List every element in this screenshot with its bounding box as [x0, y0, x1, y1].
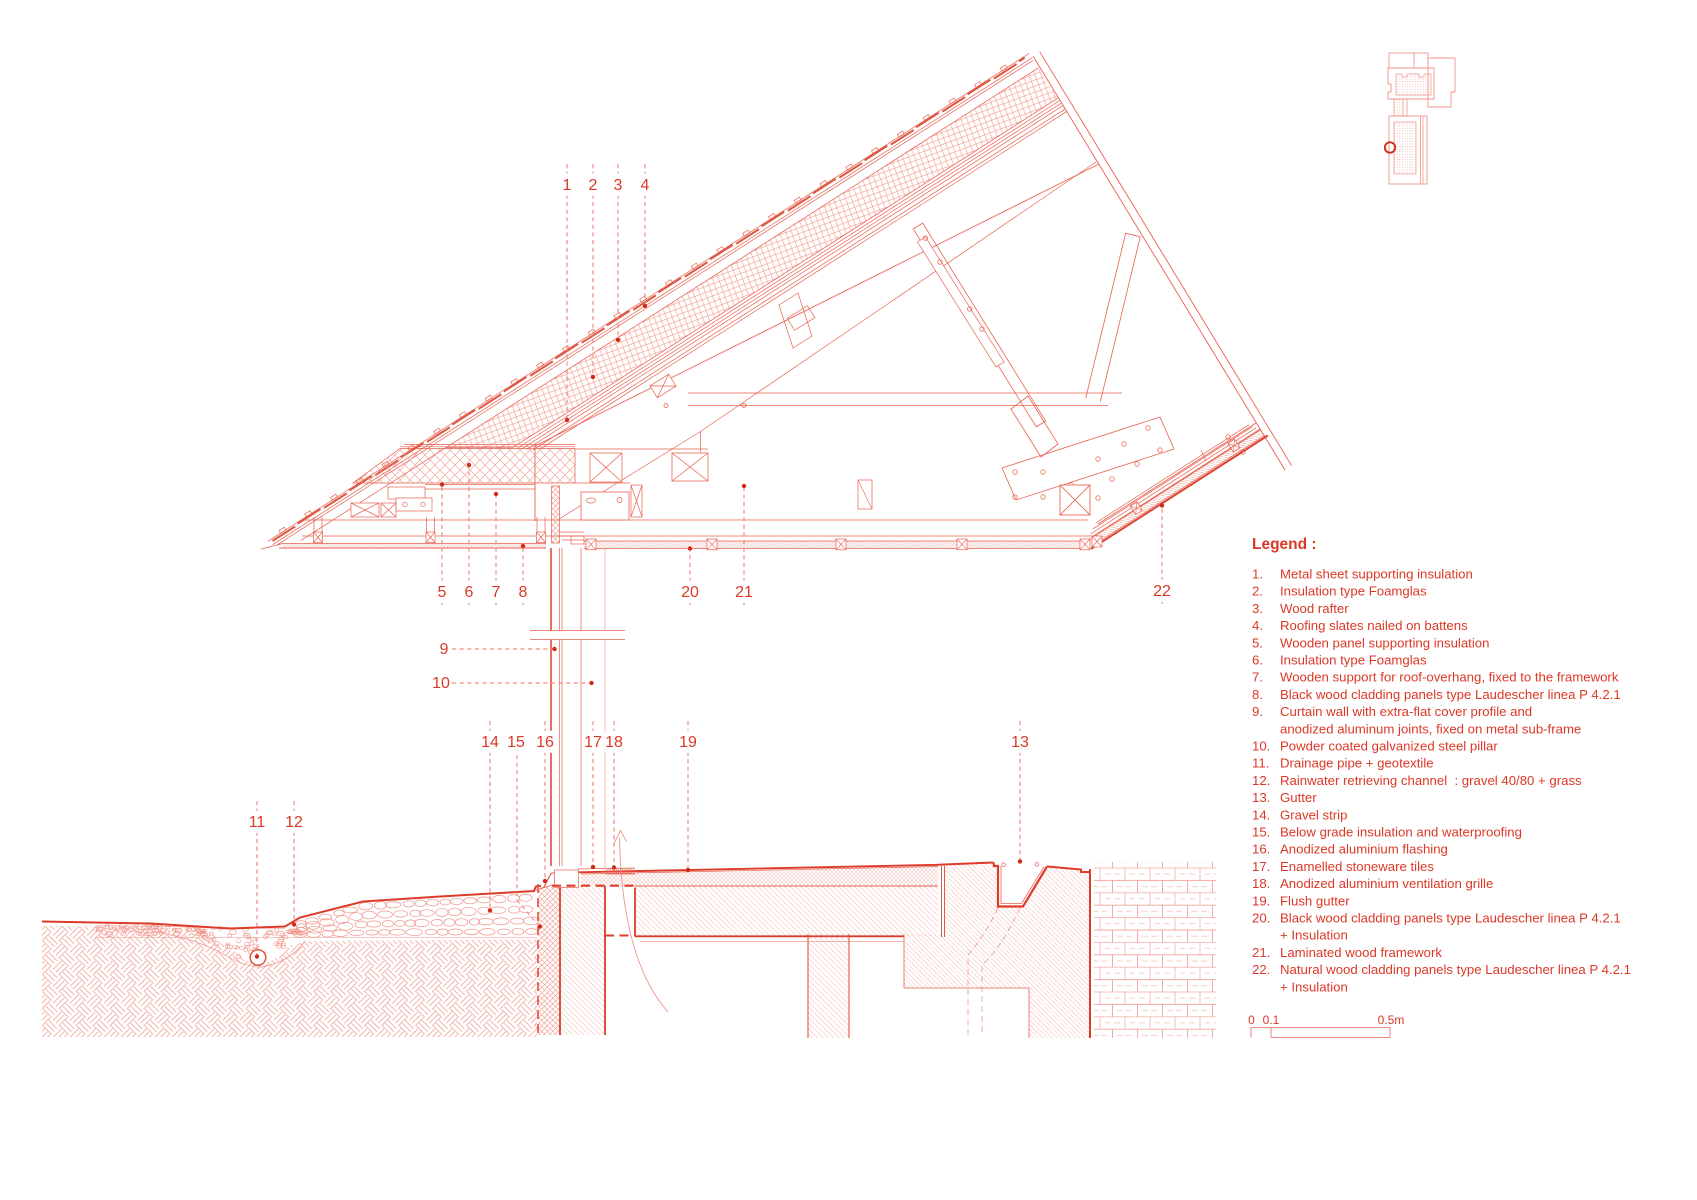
svg-text:17: 17 [584, 734, 602, 751]
svg-text:2.: 2. [1252, 584, 1263, 599]
svg-text:Below grade insulation and wat: Below grade insulation and waterproofing [1280, 825, 1522, 840]
svg-text:3: 3 [614, 177, 623, 194]
svg-text:anodized aluminum joints, fixe: anodized aluminum joints, fixed on metal… [1280, 721, 1581, 736]
svg-text:Curtain wall with extra-flat c: Curtain wall with extra-flat cover profi… [1280, 704, 1532, 719]
svg-text:9: 9 [440, 641, 449, 658]
svg-text:Wood rafter: Wood rafter [1280, 601, 1349, 616]
svg-text:21: 21 [735, 584, 753, 601]
svg-text:19: 19 [679, 734, 697, 751]
svg-text:22: 22 [1153, 583, 1171, 600]
svg-text:16: 16 [536, 734, 554, 751]
svg-text:Roofing slates nailed on batte: Roofing slates nailed on battens [1280, 618, 1468, 633]
svg-text:Drainage pipe + geotextile: Drainage pipe + geotextile [1280, 756, 1434, 771]
svg-text:Gutter: Gutter [1280, 790, 1317, 805]
svg-text:14.: 14. [1252, 807, 1270, 822]
svg-text:5: 5 [438, 584, 447, 601]
svg-text:18.: 18. [1252, 876, 1270, 891]
svg-text:18: 18 [605, 734, 623, 751]
svg-text:4: 4 [641, 177, 650, 194]
svg-text:Anodized aluminium ventilation: Anodized aluminium ventilation grille [1280, 876, 1493, 891]
svg-text:Black wood cladding panels typ: Black wood cladding panels type Laudesch… [1280, 687, 1621, 702]
svg-text:10.: 10. [1252, 739, 1270, 754]
svg-text:Enamelled stoneware tiles: Enamelled stoneware tiles [1280, 859, 1434, 874]
svg-text:8.: 8. [1252, 687, 1263, 702]
svg-text:Rainwater retrieving channel: Rainwater retrieving channel : gravel 40… [1280, 773, 1582, 788]
svg-text:Wooden panel supporting insula: Wooden panel supporting insulation [1280, 635, 1489, 650]
svg-text:Powder coated galvanized steel: Powder coated galvanized steel pillar [1280, 739, 1498, 754]
svg-text:Gravel strip: Gravel strip [1280, 807, 1347, 822]
svg-text:13.: 13. [1252, 790, 1270, 805]
svg-text:7: 7 [492, 584, 501, 601]
svg-text:19.: 19. [1252, 893, 1270, 908]
svg-text:16.: 16. [1252, 842, 1270, 857]
svg-text:Black wood cladding panels typ: Black wood cladding panels type Laudesch… [1280, 911, 1621, 926]
svg-text:6: 6 [465, 584, 474, 601]
svg-text:9.: 9. [1252, 704, 1263, 719]
svg-text:15.: 15. [1252, 825, 1270, 840]
svg-text:Laminated wood framework: Laminated wood framework [1280, 945, 1442, 960]
svg-text:Natural wood cladding panels t: Natural wood cladding panels type Laudes… [1280, 962, 1631, 977]
svg-text:+ Insulation: + Insulation [1280, 928, 1348, 943]
svg-text:20.: 20. [1252, 911, 1270, 926]
svg-text:10: 10 [432, 675, 450, 692]
svg-text:0.1: 0.1 [1263, 1013, 1280, 1027]
svg-text:Flush gutter: Flush gutter [1280, 893, 1350, 908]
svg-text:+ Insulation: + Insulation [1280, 979, 1348, 994]
svg-text:12: 12 [285, 814, 303, 831]
svg-text:0.5m: 0.5m [1378, 1013, 1405, 1027]
svg-text:13: 13 [1011, 734, 1029, 751]
svg-text:4.: 4. [1252, 618, 1263, 633]
svg-text:12.: 12. [1252, 773, 1270, 788]
svg-text:17.: 17. [1252, 859, 1270, 874]
svg-text:1.: 1. [1252, 567, 1263, 582]
svg-text:Metal sheet supporting insulat: Metal sheet supporting insulation [1280, 567, 1473, 582]
svg-text:2: 2 [589, 177, 598, 194]
svg-text:15: 15 [507, 734, 525, 751]
svg-text:21.: 21. [1252, 945, 1270, 960]
svg-text:22.: 22. [1252, 962, 1270, 977]
svg-text:Insulation type Foamglas: Insulation type Foamglas [1280, 584, 1427, 599]
svg-text:Legend :: Legend : [1252, 536, 1317, 553]
svg-text:3.: 3. [1252, 601, 1263, 616]
svg-text:1: 1 [563, 177, 572, 194]
svg-text:5.: 5. [1252, 635, 1263, 650]
svg-text:20: 20 [681, 584, 699, 601]
svg-text:Anodized aluminium flashing: Anodized aluminium flashing [1280, 842, 1448, 857]
svg-text:Wooden support for roof-overha: Wooden support for roof-overhang, fixed … [1280, 670, 1619, 685]
svg-text:Insulation type Foamglas: Insulation type Foamglas [1280, 653, 1427, 668]
svg-text:0: 0 [1248, 1013, 1255, 1027]
svg-text:11: 11 [249, 814, 266, 831]
svg-text:14: 14 [481, 734, 499, 751]
svg-text:8: 8 [519, 584, 528, 601]
svg-text:11.: 11. [1252, 756, 1269, 771]
svg-text:6.: 6. [1252, 653, 1263, 668]
svg-text:7.: 7. [1252, 670, 1263, 685]
